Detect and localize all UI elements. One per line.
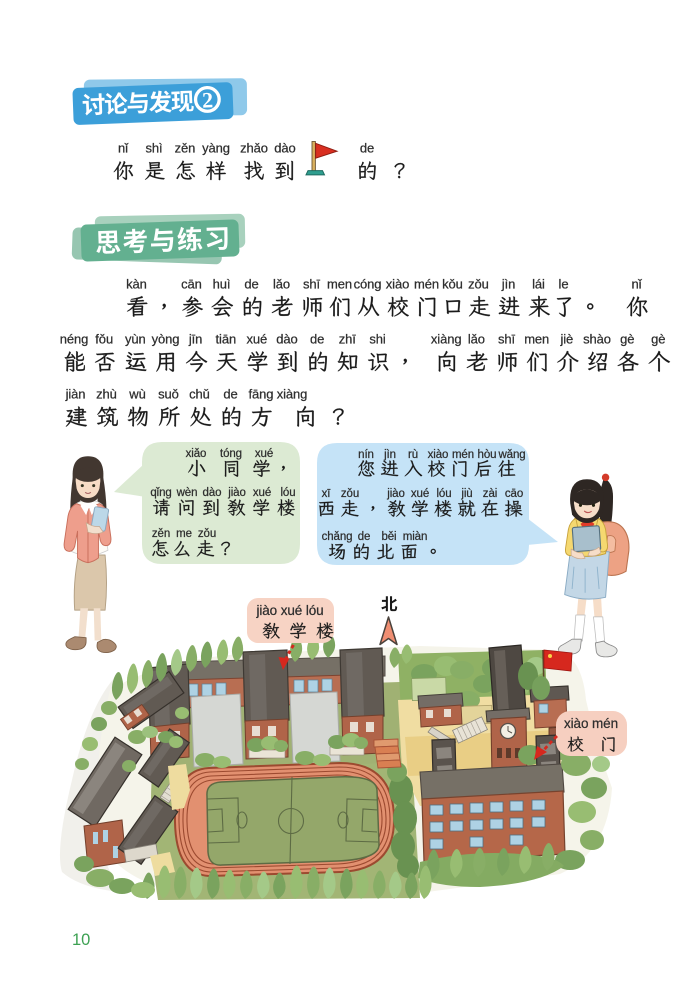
svg-text:jìn: jìn [501,277,515,292]
svg-text:xiào mén: xiào mén [564,716,618,731]
svg-text:de: de [360,141,374,156]
svg-text:jiào xué lóu: jiào xué lóu [255,603,323,618]
svg-text:suǒ: suǒ [158,387,179,402]
svg-text:shi: shi [369,332,386,347]
svg-text:jìn: jìn [383,449,396,461]
svg-text:2: 2 [202,87,214,112]
svg-text:de: de [223,387,237,402]
svg-text:tiān: tiān [216,332,237,347]
svg-text:10: 10 [72,931,90,949]
svg-text:yòng: yòng [152,332,180,347]
svg-text:jīn: jīn [188,332,202,347]
svg-text:lóu: lóu [436,488,451,500]
svg-text:gè: gè [620,332,634,347]
svg-text:tóng: tóng [220,448,242,460]
svg-text:zěn: zěn [152,528,170,540]
svg-text:gè: gè [651,332,665,347]
svg-text:de: de [310,332,324,347]
svg-text:nǐ: nǐ [118,141,129,156]
svg-text:de: de [358,531,371,543]
svg-text:xiào: xiào [386,277,409,292]
svg-text:miàn: miàn [403,531,428,543]
svg-text:chǔ: chǔ [189,387,210,402]
svg-text:de: de [244,277,258,292]
svg-text:jiù: jiù [460,488,472,500]
svg-text:dào: dào [274,141,295,156]
svg-text:xué: xué [253,487,271,499]
svg-text:zài: zài [483,488,497,500]
svg-text:xiàng: xiàng [431,332,462,347]
svg-text:fǒu: fǒu [95,332,113,347]
svg-text:nǐ: nǐ [632,277,643,292]
svg-text:běi: běi [381,531,396,543]
svg-text:zhù: zhù [96,387,117,402]
svg-text:me: me [176,528,192,540]
svg-text:dào: dào [276,332,297,347]
svg-text:zhǎo: zhǎo [240,141,268,156]
svg-text:wèn: wèn [176,487,198,499]
svg-text:xī: xī [322,488,332,500]
svg-text:zěn: zěn [175,141,196,156]
svg-text:mén: mén [452,449,474,461]
svg-text:lóu: lóu [280,487,295,499]
svg-text:wǎng: wǎng [497,449,525,461]
svg-text:cóng: cóng [354,277,382,292]
svg-text:néng: néng [60,332,89,347]
svg-text:zǒu: zǒu [468,277,489,292]
svg-text:qǐng: qǐng [150,487,171,499]
svg-text:hòu: hòu [478,449,497,461]
svg-text:yùn: yùn [125,332,146,347]
svg-text:lǎo: lǎo [468,332,485,347]
svg-text:men: men [524,332,549,347]
svg-text:xiǎo: xiǎo [186,448,207,460]
svg-text:cān: cān [181,277,202,292]
svg-text:xiàng: xiàng [277,387,308,402]
svg-text:jiè: jiè [559,332,573,347]
svg-text:xué: xué [411,488,429,500]
svg-text:shì: shì [145,141,162,156]
svg-text:mén: mén [414,277,439,292]
svg-text:cāo: cāo [505,488,523,500]
svg-text:lǎo: lǎo [273,277,290,292]
svg-text:kǒu: kǒu [442,277,463,292]
svg-text:xué: xué [246,332,267,347]
svg-text:zhī: zhī [339,332,357,347]
svg-text:wù: wù [128,387,145,402]
svg-text:jiào: jiào [386,488,405,500]
svg-text:lái: lái [532,277,545,292]
svg-text:shào: shào [583,332,611,347]
svg-text:shī: shī [303,277,321,292]
svg-text:yàng: yàng [202,141,230,156]
svg-text:xué: xué [255,448,273,460]
svg-text:le: le [559,277,569,292]
svg-text:nín: nín [358,449,374,461]
svg-text:jiàn: jiàn [65,387,86,402]
svg-text:shī: shī [498,332,516,347]
svg-text:jiào: jiào [227,487,246,499]
svg-text:men: men [327,277,352,292]
svg-text:huì: huì [213,277,231,292]
svg-text:zǒu: zǒu [198,528,216,540]
svg-text:dào: dào [203,487,222,499]
svg-text:chǎng: chǎng [322,531,353,543]
svg-text:zǒu: zǒu [341,488,359,500]
svg-text:fāng: fāng [248,387,273,402]
svg-text:rù: rù [408,449,418,461]
svg-text:xiào: xiào [428,449,449,461]
svg-text:kàn: kàn [126,277,147,292]
